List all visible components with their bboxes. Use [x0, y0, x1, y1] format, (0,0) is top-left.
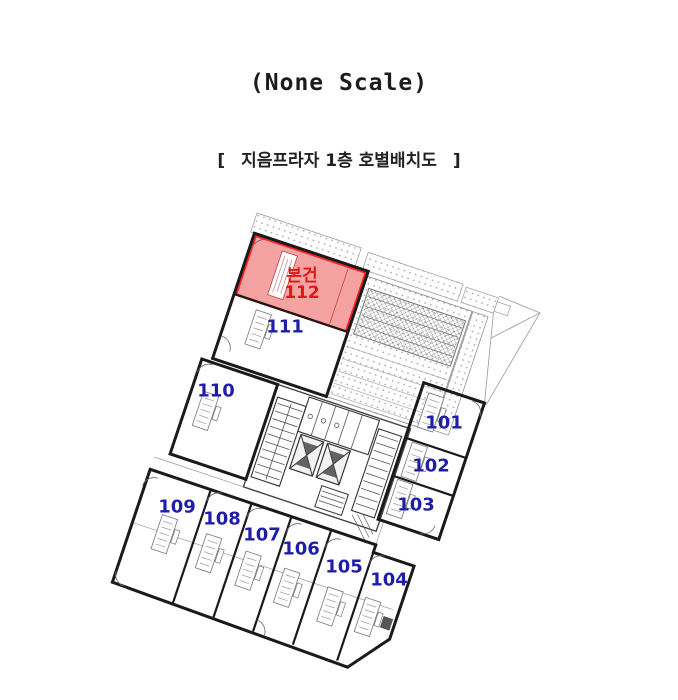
appraisal-floorplan-page: (None Scale) [지음프라자 1층 호별배치도]	[0, 0, 678, 700]
building-group	[109, 206, 542, 689]
floor-plan-drawing	[0, 0, 678, 700]
